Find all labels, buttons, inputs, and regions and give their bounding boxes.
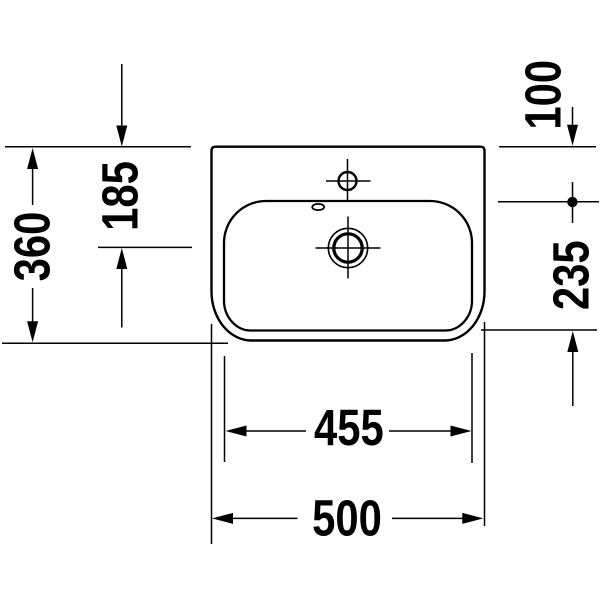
svg-text:500: 500 xyxy=(312,489,382,546)
svg-text:360: 360 xyxy=(4,212,61,282)
svg-text:185: 185 xyxy=(91,161,148,231)
svg-text:235: 235 xyxy=(542,240,599,310)
svg-text:100: 100 xyxy=(514,60,571,130)
svg-text:455: 455 xyxy=(314,399,384,456)
